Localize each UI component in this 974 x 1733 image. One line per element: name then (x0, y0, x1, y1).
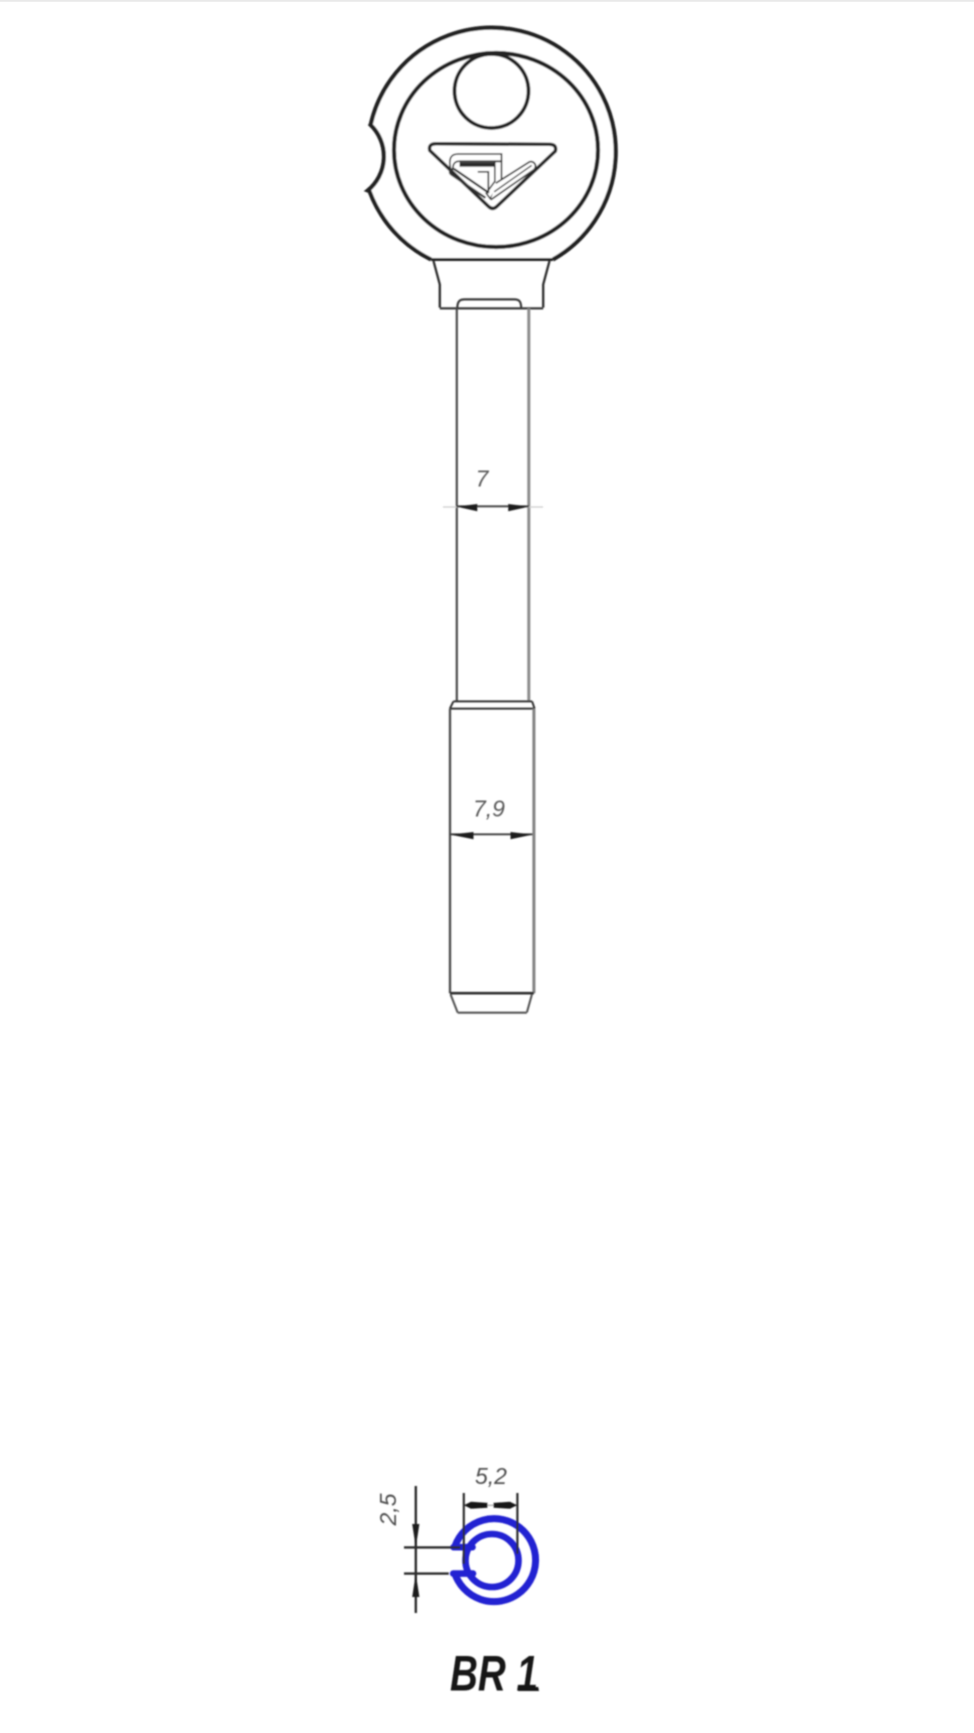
svg-text:7,9: 7,9 (473, 796, 505, 822)
svg-text:2,5: 2,5 (375, 1493, 401, 1526)
svg-text:5,2: 5,2 (475, 1463, 507, 1489)
svg-text:7: 7 (476, 466, 490, 492)
svg-text:BR 1: BR 1 (450, 1646, 538, 1702)
